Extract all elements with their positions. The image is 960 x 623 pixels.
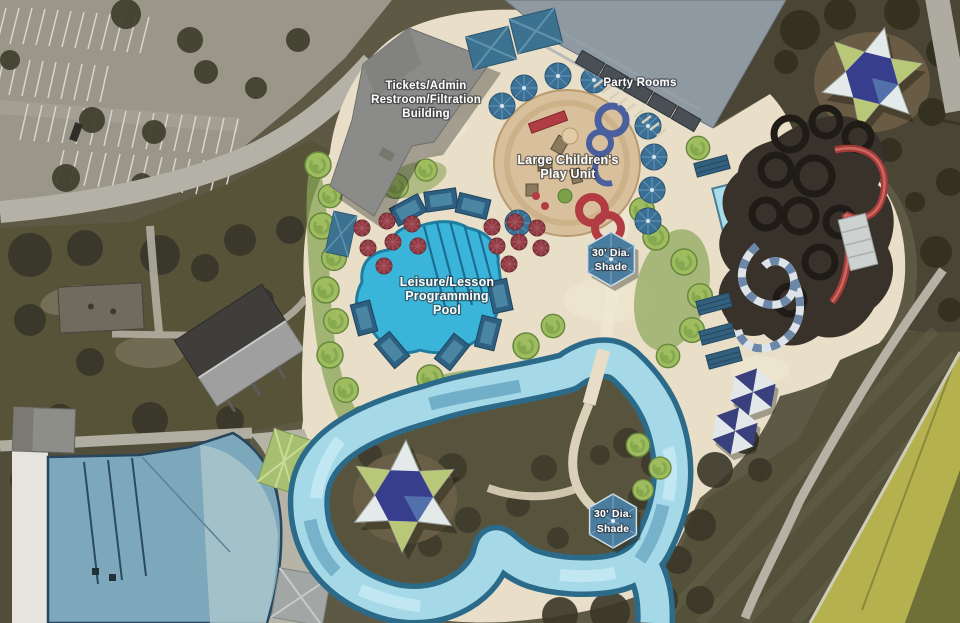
tickets-label-line3: Building	[402, 108, 450, 120]
play-unit-label-line1: Large Children's	[517, 153, 618, 167]
leisure-pool-label-line1: Leisure/Lesson	[400, 275, 495, 289]
shade-upper-label-line2: Shade	[595, 261, 628, 273]
site-plan-canvas: 30' Dia. Shade Leisure/Lesson Programmin…	[0, 0, 960, 623]
shade-lower-label-line1: 30' Dia.	[594, 508, 632, 520]
aerial-site-plan: 30' Dia. Shade Leisure/Lesson Programmin…	[0, 0, 960, 623]
tickets-label-line1: Tickets/Admin	[386, 80, 467, 92]
leisure-pool-label-line3: Pool	[433, 303, 461, 317]
existing-white-deck	[12, 450, 48, 623]
existing-flat-building	[58, 283, 144, 333]
shade-upper-label-line1: 30' Dia.	[592, 247, 630, 259]
shade-lower-label-line2: Shade	[597, 523, 630, 535]
party-rooms-label: Party Rooms	[603, 77, 676, 89]
leisure-pool-label-line2: Programming	[405, 289, 488, 303]
pool-building	[12, 407, 75, 453]
existing-pool-area	[0, 407, 331, 623]
tickets-label-line2: Restroom/Filtration	[371, 94, 481, 106]
play-unit-label-line2: Play Unit	[540, 167, 596, 181]
